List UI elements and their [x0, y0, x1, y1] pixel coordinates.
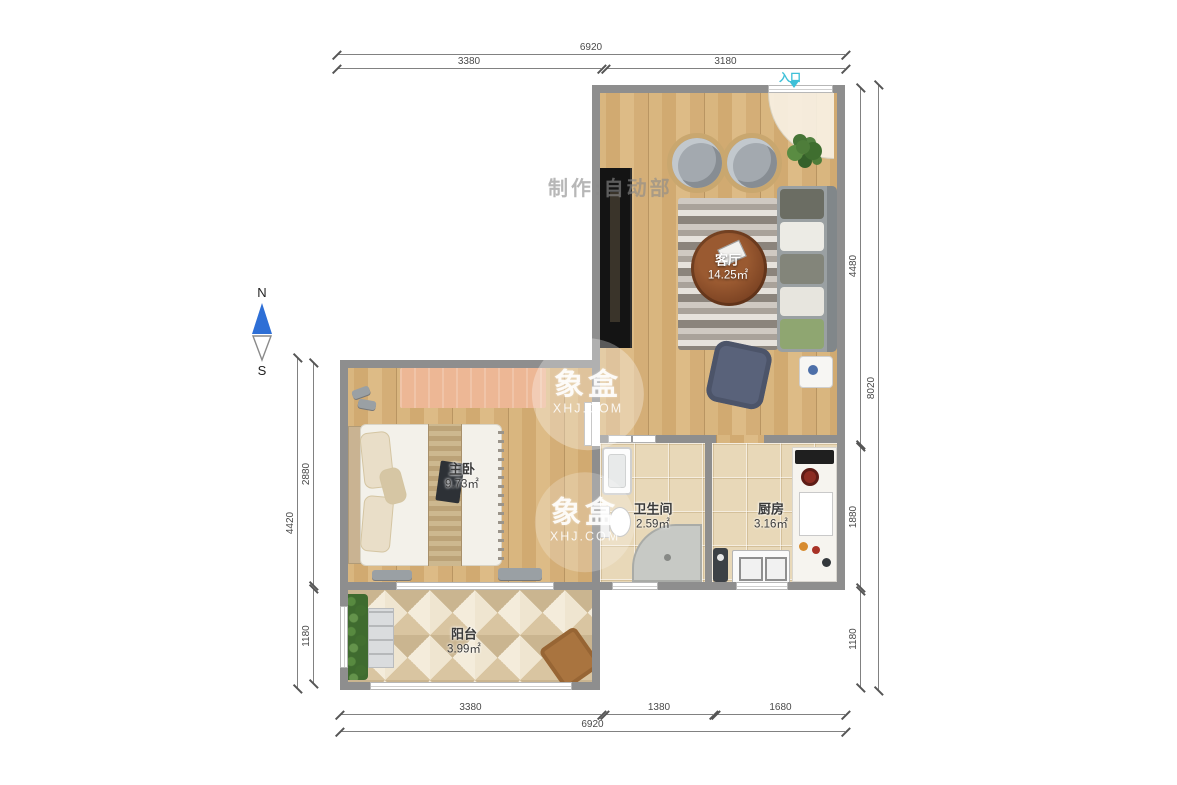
- dim-left-seg-1: 2880: [313, 363, 314, 585]
- dim-top-overall: 6920: [337, 54, 845, 55]
- brand-logo-text: 象盒: [553, 370, 623, 400]
- room-name: 卫生间: [633, 502, 672, 518]
- dim-right-seg-3: 1180: [860, 591, 861, 687]
- room-label-living: 客厅 14.25㎡: [708, 253, 748, 284]
- dim-right-seg-2: 1880: [860, 447, 861, 587]
- dim-bottom-seg-2: 1380: [605, 714, 713, 715]
- rattan-chair-2: [722, 133, 782, 193]
- brand-watermark-1: 象盒 XHJ.COM: [553, 370, 623, 418]
- dim-value: 1880: [849, 506, 859, 528]
- water-heater: [713, 548, 728, 582]
- room-name: 厨房: [754, 502, 788, 518]
- brand-site-text: XHJ.COM: [550, 528, 620, 546]
- sofa-cushions: [780, 189, 824, 349]
- entrance-door: [768, 85, 833, 93]
- room-name: 主卧: [445, 462, 479, 478]
- dim-left-seg-2: 1180: [313, 589, 314, 683]
- dim-bottom-seg-1: 3380: [340, 714, 601, 715]
- room-label-bathroom: 卫生间 2.59㎡: [633, 502, 672, 533]
- bed-fringe: [498, 430, 504, 560]
- sofa-backrest: [827, 186, 837, 352]
- floor-decor: [498, 568, 542, 580]
- wall-living-left: [592, 85, 600, 368]
- dim-top-seg-1: 3380: [337, 68, 601, 69]
- dim-right-overall: 8020: [878, 85, 879, 690]
- room-area: 9.73㎡: [445, 478, 479, 492]
- stove: [795, 450, 834, 464]
- sink-basin: [739, 557, 763, 581]
- dim-value: 3380: [458, 57, 480, 67]
- bathroom-window: [612, 582, 658, 590]
- brand-watermark-2: 象盒 XHJ.COM: [550, 498, 620, 546]
- dim-left-overall: 4420: [297, 358, 298, 688]
- room-name: 客厅: [708, 253, 748, 269]
- dim-value: 6920: [580, 43, 602, 53]
- wall-bath-kitchen: [705, 443, 712, 582]
- dim-value: 1680: [769, 703, 791, 713]
- potted-plant-icon: [796, 140, 810, 154]
- dim-value: 8020: [867, 376, 877, 398]
- sofa-cushion: [780, 254, 824, 284]
- room-label-balcony: 阳台 3.99㎡: [447, 627, 481, 658]
- bedroom-rug: [400, 368, 546, 408]
- sofa-cushion: [780, 319, 824, 349]
- room-area: 14.25㎡: [708, 269, 748, 283]
- room-area: 3.16㎡: [754, 518, 788, 532]
- kitchen-item: [822, 558, 831, 567]
- kitchen-table: [799, 492, 833, 536]
- rattan-chair-1: [667, 133, 727, 193]
- kitchen-door-opening: [716, 435, 764, 443]
- sink-basin: [765, 557, 787, 581]
- bedroom-balcony-window: [396, 582, 554, 590]
- dim-value: 3180: [714, 57, 736, 67]
- drying-rack: [368, 608, 394, 668]
- dim-value: 4420: [286, 512, 296, 534]
- kitchen-window: [736, 582, 788, 590]
- sofa-cushion: [780, 189, 824, 219]
- side-table: [799, 356, 833, 388]
- sofa: [777, 186, 837, 352]
- wall-top-left: [592, 85, 768, 93]
- dim-value: 1380: [648, 703, 670, 713]
- room-name: 阳台: [447, 627, 481, 643]
- dim-value: 1180: [849, 628, 859, 650]
- balcony-window: [370, 682, 572, 690]
- dim-value: 6920: [581, 720, 603, 730]
- dim-value: 1180: [302, 625, 312, 647]
- brand-logo-text: 象盒: [550, 498, 620, 528]
- compass-south-label: S: [248, 364, 276, 378]
- sofa-cushion: [780, 287, 824, 317]
- floorplan-canvas: 客厅 14.25㎡ 主卧 9.73㎡ 卫生间 2.59㎡ 厨房 3.16㎡ 阳台…: [0, 0, 1177, 785]
- side-table-item: [808, 365, 818, 375]
- brand-site-text: XHJ.COM: [553, 400, 623, 418]
- dim-bottom-overall: 6920: [340, 731, 845, 732]
- dim-value: 4480: [849, 255, 859, 277]
- kitchen-sink: [732, 550, 790, 584]
- room-label-kitchen: 厨房 3.16㎡: [754, 502, 788, 533]
- room-label-bedroom: 主卧 9.73㎡: [445, 462, 479, 493]
- wall-right: [837, 85, 845, 590]
- sofa-cushion: [780, 222, 824, 252]
- tv-shelf: [610, 192, 620, 322]
- balcony-side-window: [340, 606, 348, 668]
- dim-right-seg-1: 4480: [860, 88, 861, 444]
- dim-top-seg-2: 3180: [606, 68, 845, 69]
- dim-value: 3380: [459, 703, 481, 713]
- compass-north-label: N: [248, 286, 276, 300]
- cooking-pot: [801, 468, 819, 486]
- entrance-arrow-icon: [789, 81, 799, 88]
- kitchen-item: [812, 546, 820, 554]
- kitchen-item: [799, 542, 808, 551]
- maker-watermark: 制作:自动部: [548, 172, 673, 201]
- heater-dial: [717, 554, 724, 561]
- floor-decor: [372, 570, 412, 580]
- compass: N S: [248, 286, 276, 379]
- room-area: 3.99㎡: [447, 643, 481, 657]
- wall-balcony-right: [592, 582, 600, 690]
- room-area: 2.59㎡: [633, 518, 672, 532]
- dim-value: 2880: [302, 463, 312, 485]
- dim-bottom-seg-3: 1680: [716, 714, 845, 715]
- compass-needle-icon: [249, 301, 275, 363]
